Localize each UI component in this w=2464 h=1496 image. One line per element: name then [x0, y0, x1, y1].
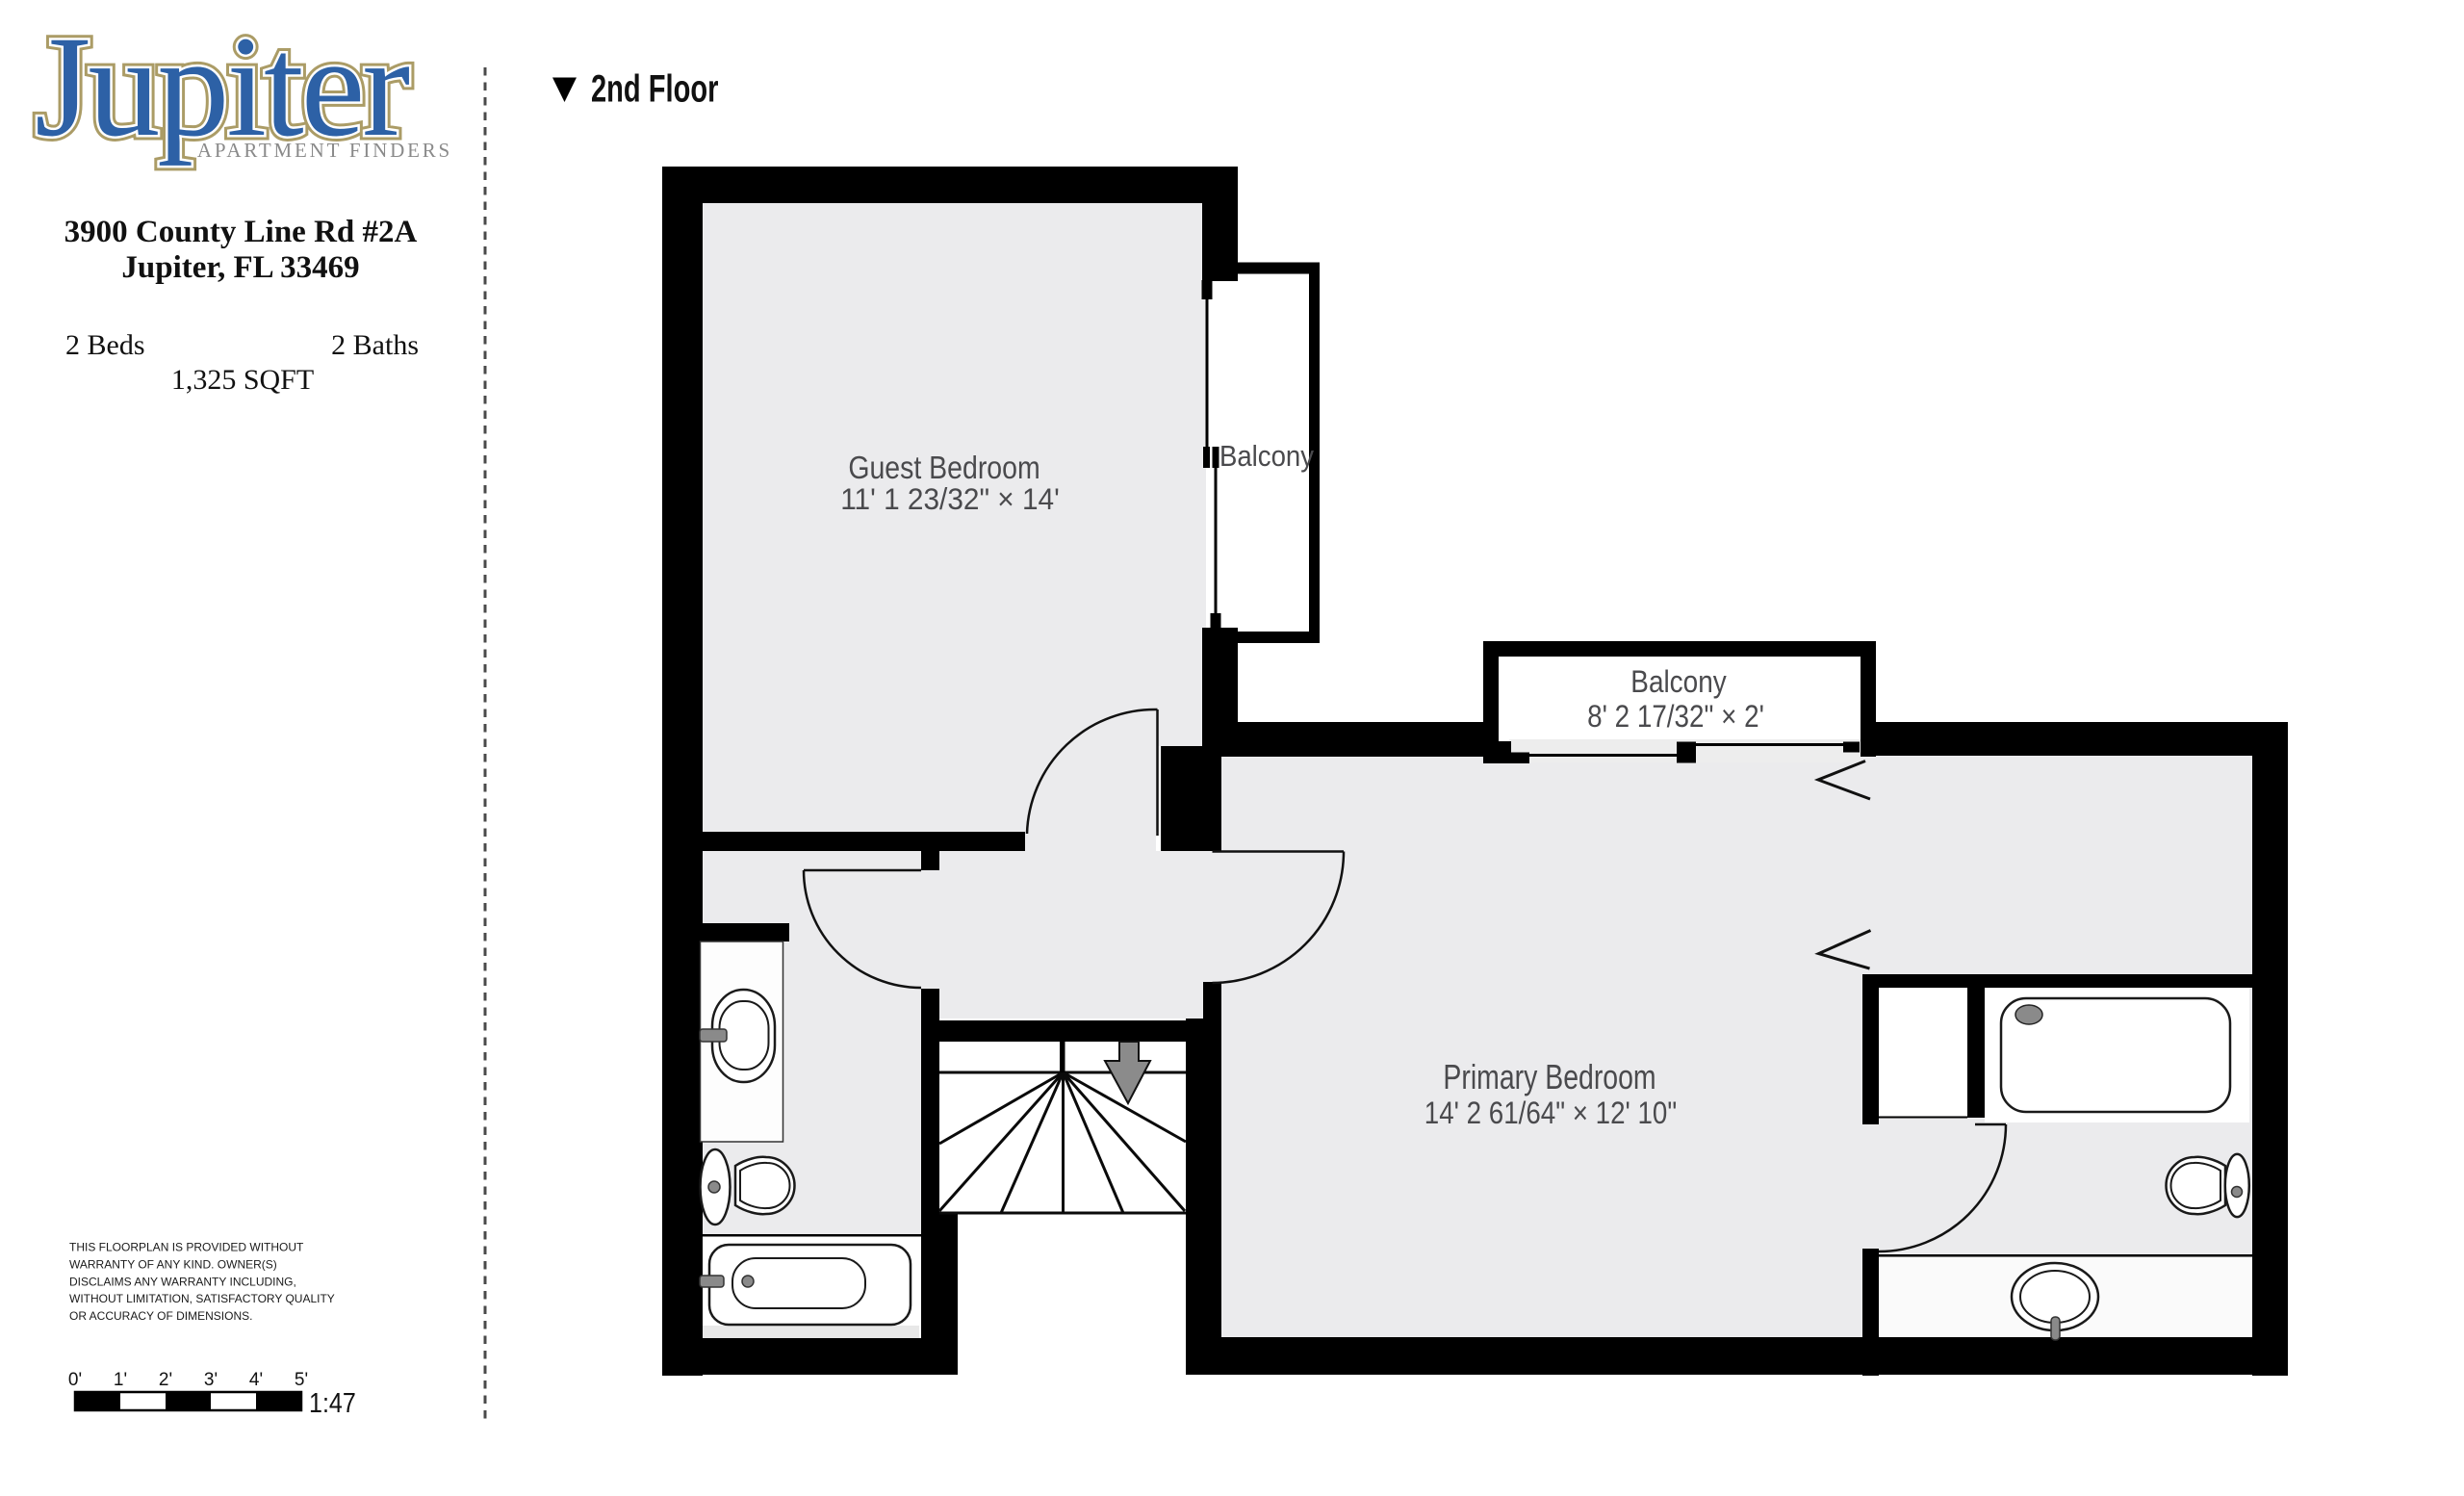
svg-text:THIS FLOORPLAN IS PROVIDED WIT: THIS FLOORPLAN IS PROVIDED WITHOUT [69, 1241, 304, 1254]
svg-text:3900 County Line Rd #2A: 3900 County Line Rd #2A [64, 215, 418, 249]
svg-text:Jupiter, FL 33469: Jupiter, FL 33469 [121, 250, 359, 285]
svg-text:Balcony: Balcony [1219, 440, 1314, 474]
svg-text:11' 1 23/32" × 14': 11' 1 23/32" × 14' [840, 481, 1060, 516]
svg-text:2 Beds: 2 Beds [65, 329, 145, 361]
svg-text:1': 1' [114, 1370, 127, 1390]
svg-text:1,325 SQFT: 1,325 SQFT [171, 364, 314, 396]
svg-text:WARRANTY OF ANY KIND. OWNER(S): WARRANTY OF ANY KIND. OWNER(S) [69, 1257, 277, 1271]
svg-text:WITHOUT LIMITATION, SATISFACTO: WITHOUT LIMITATION, SATISFACTORY QUALITY [69, 1292, 335, 1305]
svg-text:1:47: 1:47 [309, 1388, 356, 1419]
svg-text:4': 4' [249, 1370, 263, 1390]
svg-text:2nd Floor: 2nd Floor [591, 67, 719, 111]
svg-text:DISCLAIMS ANY WARRANTY INCLUDI: DISCLAIMS ANY WARRANTY INCLUDING, [69, 1275, 296, 1288]
svg-text:0': 0' [68, 1370, 82, 1390]
svg-text:Balcony: Balcony [1630, 665, 1727, 699]
svg-text:2 Baths: 2 Baths [331, 329, 419, 361]
svg-text:14' 2 61/64" × 12' 10": 14' 2 61/64" × 12' 10" [1424, 1096, 1677, 1130]
svg-text:Guest Bedroom: Guest Bedroom [848, 450, 1039, 486]
svg-text:3': 3' [204, 1370, 218, 1390]
svg-text:OR ACCURACY OF DIMENSIONS.: OR ACCURACY OF DIMENSIONS. [69, 1309, 252, 1323]
svg-text:Primary Bedroom: Primary Bedroom [1443, 1058, 1655, 1096]
svg-text:2': 2' [159, 1370, 172, 1390]
svg-text:8' 2 17/32" × 2': 8' 2 17/32" × 2' [1587, 700, 1764, 734]
svg-text:APARTMENT FINDERS: APARTMENT FINDERS [197, 139, 452, 162]
svg-text:5': 5' [295, 1370, 308, 1390]
